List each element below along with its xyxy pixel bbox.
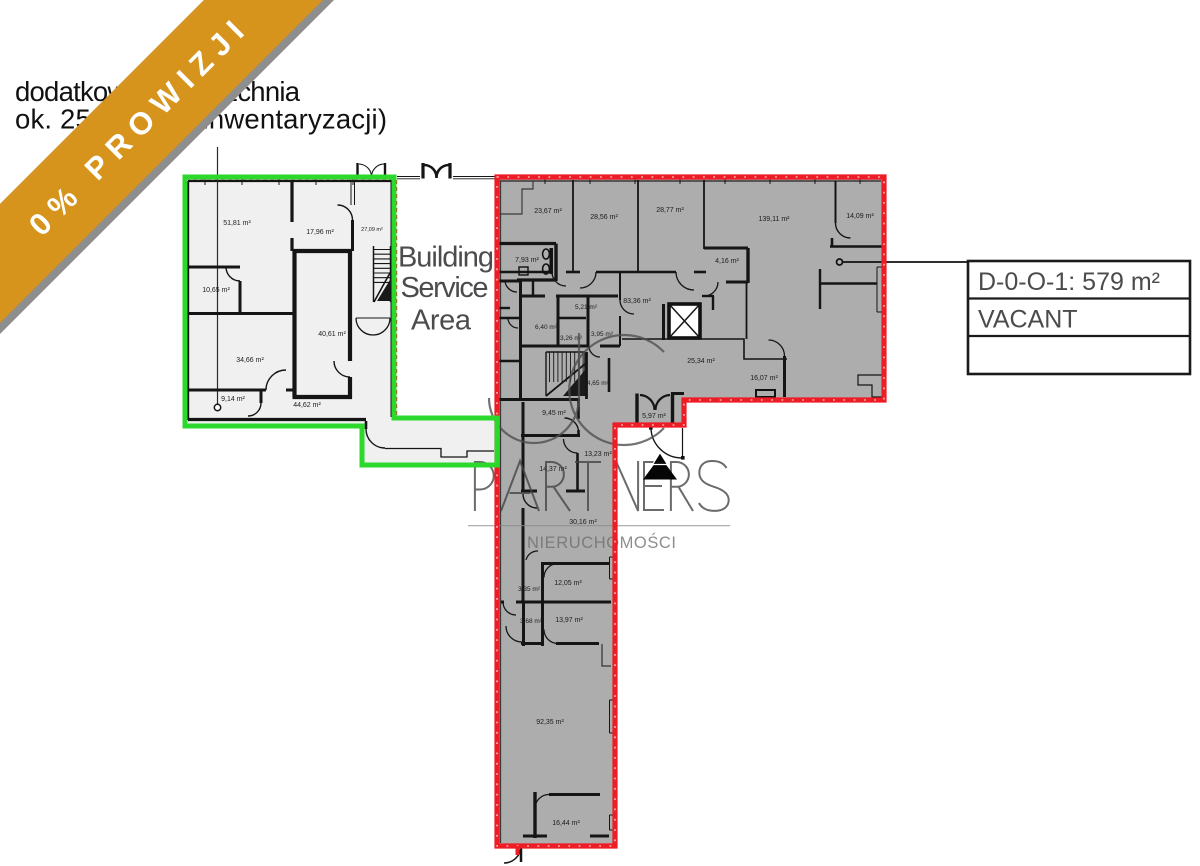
svg-text:28,56 m²: 28,56 m²	[590, 214, 618, 221]
svg-text:9,14 m²: 9,14 m²	[221, 396, 245, 403]
svg-text:10,65 m²: 10,65 m²	[202, 287, 230, 294]
svg-text:5,97 m²: 5,97 m²	[642, 413, 666, 420]
svg-text:16,44 m²: 16,44 m²	[552, 820, 580, 827]
svg-text:Service: Service	[401, 272, 489, 304]
svg-text:17,96 m²: 17,96 m²	[306, 229, 334, 236]
svg-text:44,62 m²: 44,62 m²	[293, 402, 321, 409]
svg-text:6,40 m²: 6,40 m²	[535, 324, 558, 331]
svg-text:139,11 m²: 139,11 m²	[759, 216, 791, 223]
svg-text:12,05 m²: 12,05 m²	[554, 580, 582, 587]
svg-text:25,34 m²: 25,34 m²	[687, 358, 715, 365]
svg-text:92,35 m²: 92,35 m²	[536, 719, 564, 726]
svg-text:30,16 m²: 30,16 m²	[569, 519, 597, 526]
svg-text:23,67 m²: 23,67 m²	[534, 208, 562, 215]
svg-text:7,93 m²: 7,93 m²	[515, 257, 539, 264]
svg-text:51,81 m²: 51,81 m²	[223, 220, 251, 227]
svg-text:40,61 m²: 40,61 m²	[318, 331, 346, 338]
svg-text:9,45 m²: 9,45 m²	[542, 410, 566, 417]
svg-text:13,23 m²: 13,23 m²	[584, 451, 612, 458]
svg-text:VACANT: VACANT	[978, 306, 1078, 334]
svg-text:27,09 m²: 27,09 m²	[361, 227, 383, 233]
svg-text:14,65 m²: 14,65 m²	[583, 380, 609, 387]
svg-text:13,97 m²: 13,97 m²	[555, 617, 583, 624]
svg-text:14,09 m²: 14,09 m²	[846, 213, 874, 220]
svg-text:Building: Building	[398, 242, 494, 274]
svg-text:D-0-O-1: 579 m²: D-0-O-1: 579 m²	[978, 268, 1160, 296]
svg-text:28,77 m²: 28,77 m²	[656, 207, 684, 214]
svg-text:NIERUCHOMOŚCI: NIERUCHOMOŚCI	[527, 533, 681, 552]
svg-text:34,66 m²: 34,66 m²	[236, 357, 264, 364]
svg-text:3,35 m²: 3,35 m²	[518, 586, 541, 593]
svg-text:Area: Area	[411, 305, 472, 337]
svg-text:83,36 m²: 83,36 m²	[623, 298, 651, 305]
svg-text:16,07 m²: 16,07 m²	[750, 375, 778, 382]
svg-text:5,21 m²: 5,21 m²	[575, 304, 598, 311]
svg-text:3,68 m²: 3,68 m²	[520, 618, 543, 625]
svg-text:4,16 m²: 4,16 m²	[715, 258, 739, 265]
